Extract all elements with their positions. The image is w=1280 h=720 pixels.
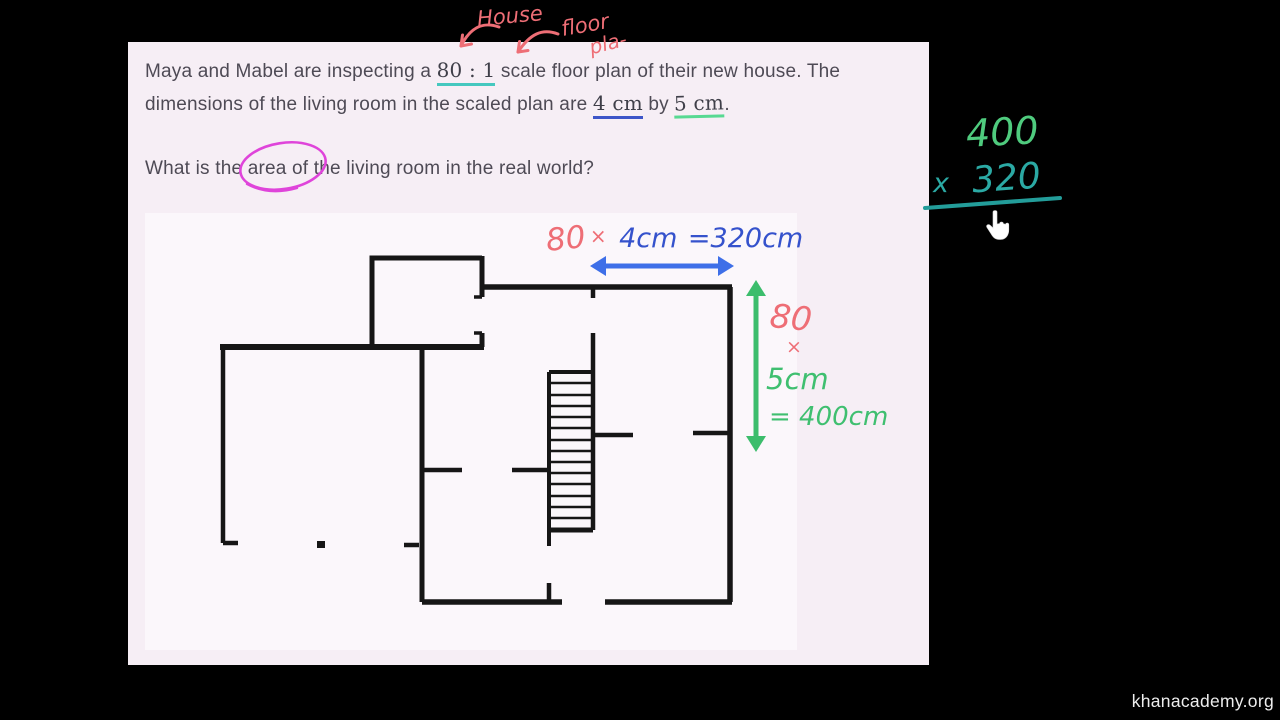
house-arrow-icon <box>452 20 502 56</box>
problem-line1-pre: Maya and Mabel are inspecting a <box>145 61 437 82</box>
problem-line-2: dimensions of the living room in the sca… <box>145 91 730 118</box>
width-arrow <box>588 254 736 278</box>
floor-plan-arrow-icon <box>508 28 562 62</box>
video-content-frame[interactable]: Maya and Mabel are inspecting a 80 : 1 s… <box>128 42 929 665</box>
plan-width-value: 4 cm <box>593 91 643 119</box>
floor-plan-drawing <box>140 212 800 652</box>
video-frame-page: { "page": { "watermark": "khanacademy.or… <box>0 0 1280 720</box>
area-circle-annotation <box>233 137 337 199</box>
height-calc-times: × <box>786 336 802 358</box>
height-calc-value: 5cm <box>766 362 829 396</box>
width-calc-times: × <box>590 224 607 248</box>
width-calc-result: =320cm <box>688 223 803 254</box>
board-operand-top: 400 <box>965 108 1040 156</box>
height-arrow <box>744 279 768 453</box>
question-line: What is the area of the living room in t… <box>145 157 594 181</box>
width-calc-factor: 80 <box>544 219 587 259</box>
problem-line2-mid: by <box>643 94 674 115</box>
width-calc-value: 4cm <box>619 223 677 254</box>
problem-line2-pre: dimensions of the living room in the sca… <box>145 94 593 115</box>
scale-ratio-value: 80 : 1 <box>437 58 496 86</box>
height-calc-result: = 400cm <box>769 402 888 432</box>
hand-cursor-icon <box>982 209 1010 241</box>
problem-line-1: Maya and Mabel are inspecting a 80 : 1 s… <box>145 58 840 84</box>
plan-height-value: 5 cm <box>674 90 725 118</box>
stair-treads <box>549 383 593 518</box>
problem-line1-post: scale floor plan of their new house. The <box>495 61 840 82</box>
watermark: khanacademy.org <box>1132 691 1274 712</box>
problem-line2-end: . <box>724 94 729 115</box>
width-calc-annotation: 80 × 4cm =320cm <box>546 221 803 257</box>
height-calc-factor: 80 <box>768 296 814 339</box>
